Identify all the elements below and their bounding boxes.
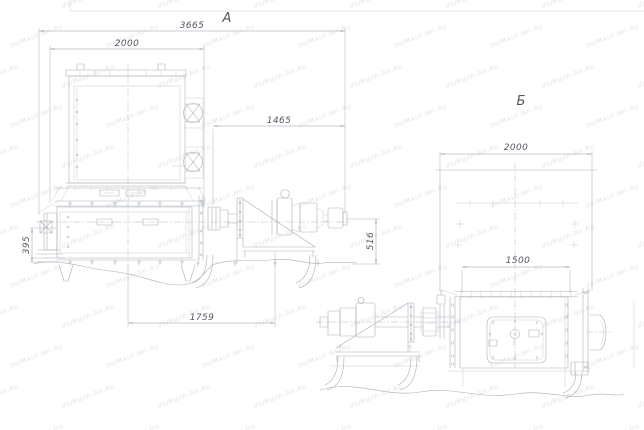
trough-a: [57, 207, 196, 281]
access-door-b: [487, 317, 546, 363]
bearing-left-a: [33, 200, 64, 258]
drawing-sheet: VolMash-Nn.RuVolMash-Nn.RuVolMash-Nn.RuV…: [0, 0, 644, 430]
technical-drawing: 3665 2000 1465 395 516 1759 А: [0, 0, 644, 430]
dim-base-span-a: 1759: [190, 313, 215, 323]
end-bearing-b: [571, 288, 634, 375]
dim-body-width-b: 2000: [504, 143, 529, 153]
butterfly-valve-upper: [184, 104, 203, 123]
view-label-a: А: [222, 11, 232, 26]
dim-overall-a: 3665: [180, 21, 205, 31]
view-label-b: Б: [517, 94, 526, 109]
drive-b: [320, 291, 450, 366]
coupling-b: [421, 291, 450, 338]
mixer-tank-a: [66, 64, 203, 186]
dim-left-height-a: 395: [22, 236, 32, 254]
motor-b: [320, 298, 408, 338]
dim-drive-length-a: 1465: [267, 116, 292, 126]
centerlines-a: [36, 64, 350, 268]
view-b: 2000 1500 Б: [316, 94, 634, 398]
motor-a: [272, 190, 347, 236]
mixer-tank-b: [436, 170, 597, 295]
drive-a: [199, 190, 347, 264]
drive-bracket-a: [237, 198, 315, 263]
dim-flange-width-b: 1500: [506, 256, 531, 266]
view-a: 3665 2000 1465 395 516 1759 А: [22, 11, 380, 327]
dimensions-a: 3665 2000 1465 395 516 1759 А: [22, 11, 380, 327]
sheet-frame: [70, 0, 644, 11]
base-b: [320, 357, 624, 398]
dim-body-width-a: 2000: [115, 39, 140, 49]
trough-b: [447, 290, 590, 388]
dimensions-b: 2000 1500 Б: [440, 94, 592, 293]
butterfly-valve-lower: [172, 153, 203, 172]
dim-right-height-a: 516: [366, 232, 376, 250]
transition-a: [52, 186, 206, 208]
